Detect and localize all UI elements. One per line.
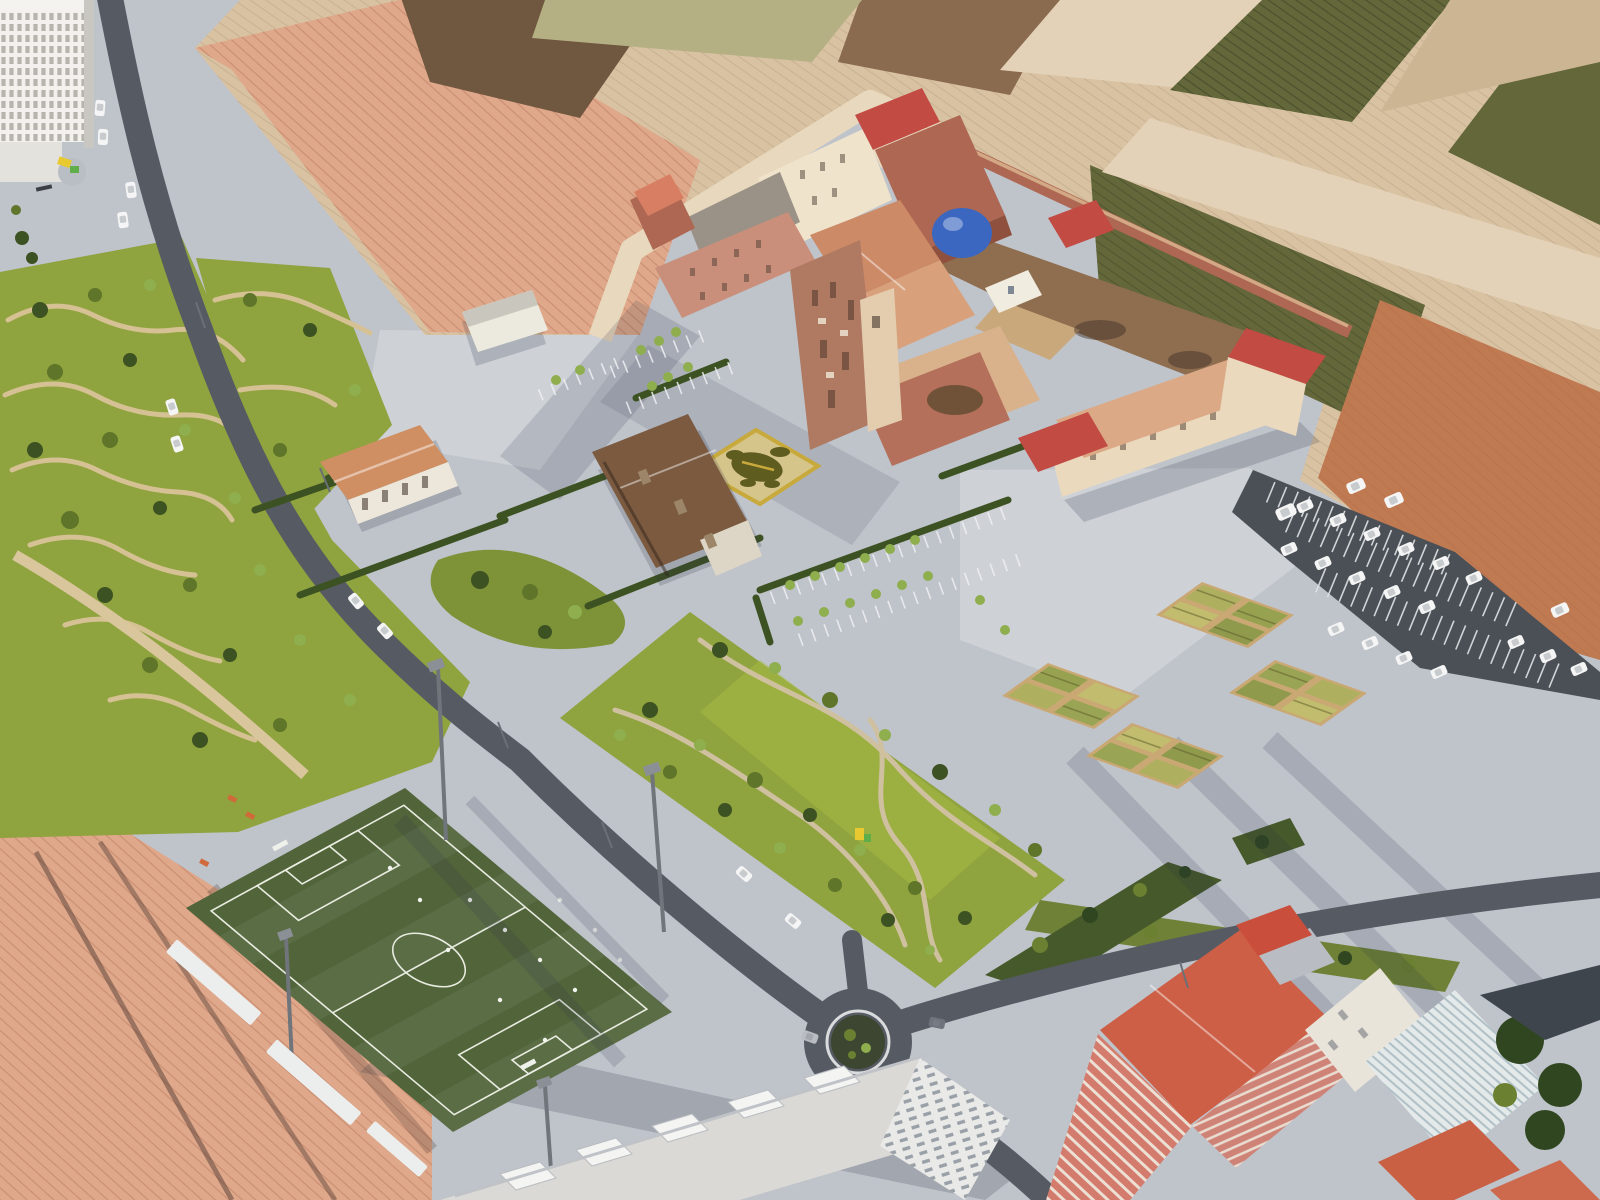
church-dome — [932, 208, 992, 258]
aerial-render — [0, 0, 1600, 1200]
road-stub — [852, 940, 858, 992]
cloister-court — [927, 385, 983, 415]
roundabout-island — [831, 1015, 885, 1069]
scene-canvas — [0, 0, 1600, 1200]
dome-highlight — [943, 217, 963, 231]
